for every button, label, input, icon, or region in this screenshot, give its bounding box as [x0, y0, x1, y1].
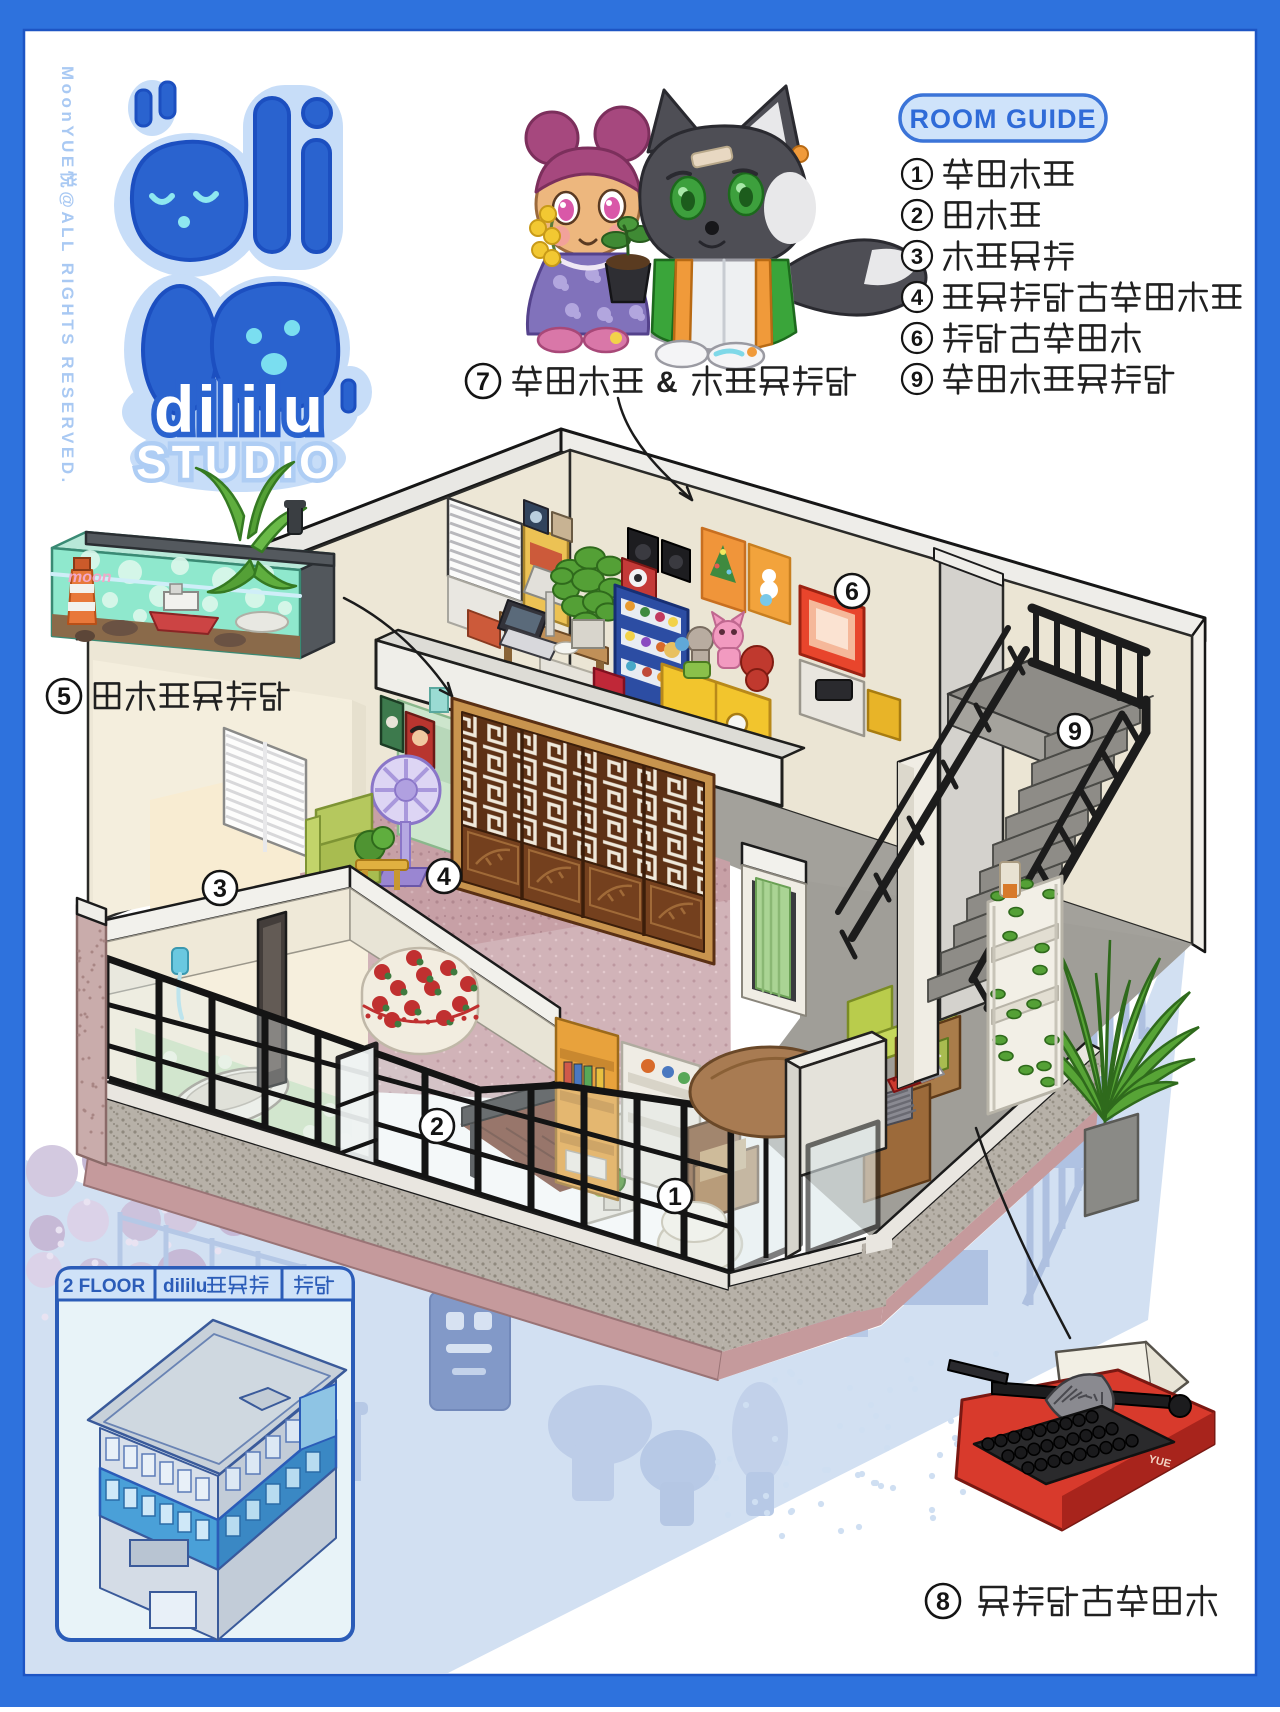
svg-text:moon: moon	[68, 569, 112, 586]
svg-text:2: 2	[911, 203, 923, 228]
svg-text:STUDIO: STUDIO	[136, 436, 340, 488]
svg-text:9: 9	[1068, 718, 1082, 746]
svg-text:7: 7	[476, 368, 490, 396]
svg-text:1: 1	[668, 1183, 682, 1211]
svg-text:1: 1	[911, 162, 923, 187]
svg-text:9: 9	[911, 367, 923, 392]
svg-text:5: 5	[57, 683, 71, 711]
svg-text:2 FLOOR: 2 FLOOR	[63, 1276, 146, 1297]
svg-text:6: 6	[911, 326, 923, 351]
svg-text:4: 4	[911, 285, 924, 310]
svg-text:dililu: dililu	[154, 372, 326, 446]
svg-text:2: 2	[430, 1113, 444, 1141]
svg-text:8: 8	[936, 1588, 950, 1616]
svg-text:4: 4	[437, 863, 451, 891]
svg-text:ROOM GUIDE: ROOM GUIDE	[909, 104, 1096, 134]
svg-text:MoonYUE悦@ALL RIGHTS RESERVED.: MoonYUE悦@ALL RIGHTS RESERVED.	[58, 66, 78, 486]
svg-text:&: &	[656, 366, 678, 399]
svg-text:3: 3	[213, 875, 227, 903]
svg-text:6: 6	[845, 578, 859, 606]
svg-text:3: 3	[911, 244, 923, 269]
svg-text:dililu: dililu	[163, 1276, 207, 1297]
